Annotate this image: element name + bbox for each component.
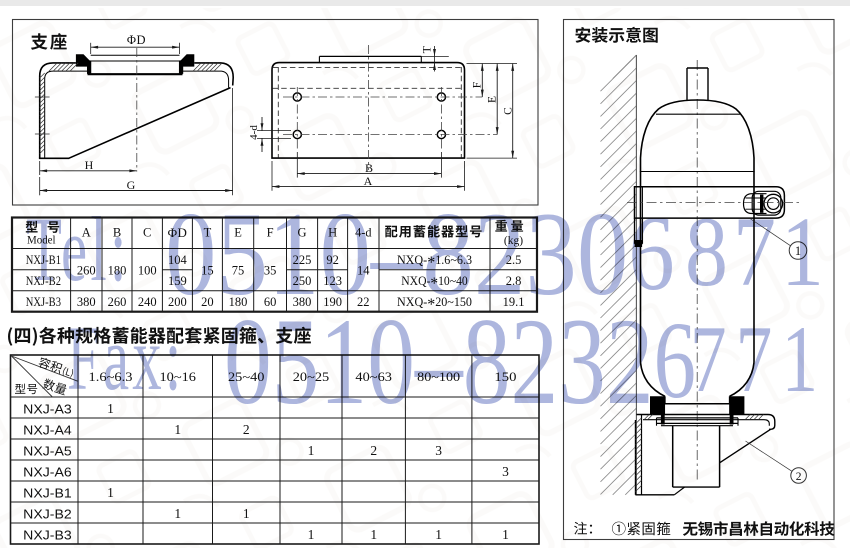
svg-text:E: E (487, 96, 499, 103)
svg-text:NXJ-B2: NXJ-B2 (23, 507, 72, 521)
svg-text:2: 2 (796, 471, 802, 483)
svg-text:NXJ-A5: NXJ-A5 (23, 444, 72, 458)
svg-text:G: G (127, 178, 136, 192)
svg-text:NXJ-B3: NXJ-B3 (23, 528, 72, 542)
svg-text:3: 3 (502, 464, 509, 479)
svg-text:1: 1 (308, 527, 315, 542)
svg-text:2: 2 (370, 443, 377, 458)
svg-text:1: 1 (435, 527, 442, 542)
svg-text:C: C (502, 107, 514, 115)
svg-text:1: 1 (174, 506, 181, 521)
svg-text:H: H (85, 158, 94, 172)
svg-text:NXJ-A6: NXJ-A6 (23, 465, 72, 479)
svg-text:1: 1 (308, 443, 315, 458)
svg-text:1: 1 (370, 527, 377, 542)
svg-text:100: 100 (138, 264, 157, 278)
svg-text:F: F (472, 82, 484, 88)
svg-text:NXJ-B1: NXJ-B1 (23, 486, 72, 500)
svg-text:1: 1 (243, 506, 250, 521)
svg-text:1: 1 (502, 527, 509, 542)
svg-text:1: 1 (107, 485, 114, 500)
svg-text:4-d: 4-d (248, 125, 260, 140)
svg-text:C: C (143, 226, 151, 240)
svg-text:NXJ-A3: NXJ-A3 (23, 402, 72, 416)
svg-text:NXJ-A4: NXJ-A4 (23, 423, 72, 437)
svg-text:B: B (365, 161, 373, 175)
svg-text:3: 3 (435, 443, 442, 458)
svg-text:ΦD: ΦD (127, 33, 146, 47)
svg-text:T: T (420, 45, 434, 53)
svg-text:1: 1 (174, 422, 181, 437)
